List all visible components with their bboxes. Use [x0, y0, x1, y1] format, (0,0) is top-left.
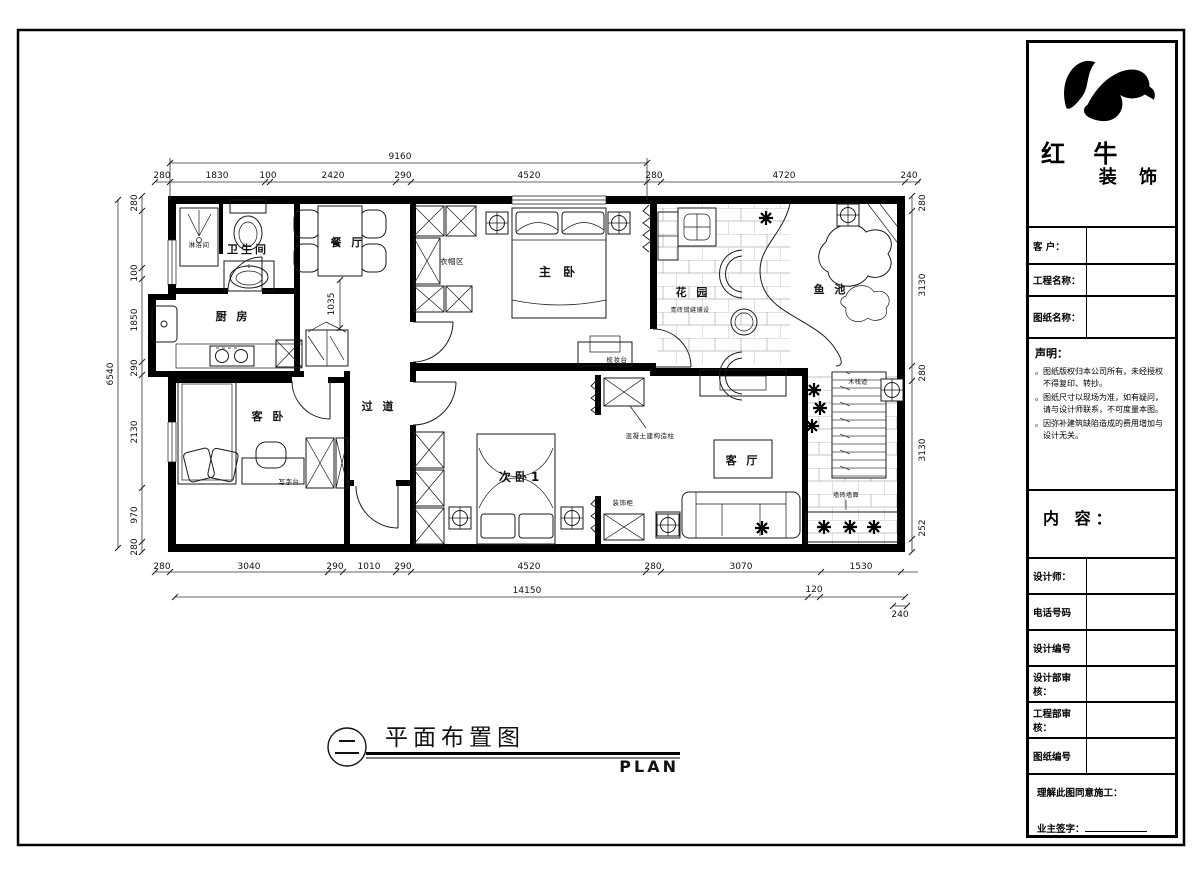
dim-label: 290 — [394, 562, 411, 572]
dim-label: 6540 — [106, 362, 116, 385]
title-block: 红 牛 装 饰 客 户： 工程名称： 图纸名称： 声明： 图纸版权归本公司所有，… — [1026, 40, 1178, 838]
field-design-no: 设计编号 — [1029, 629, 1175, 665]
field-customer: 客 户： — [1029, 226, 1175, 263]
statement-section: 声明： 图纸版权归本公司所有，未经授权不得复印、转抄。 图纸尺寸以现场为准，如有… — [1029, 337, 1175, 489]
company-logo-section: 红 牛 装 饰 — [1029, 43, 1175, 226]
company-subname: 装 饰 — [1029, 167, 1175, 189]
field-design-no-value — [1087, 631, 1175, 665]
dim-label: 280 — [153, 171, 170, 181]
owner-signature-label: 业主签字： — [1037, 824, 1085, 835]
caption-subtitle: PLAN — [619, 757, 679, 776]
field-drawing-name: 图纸名称： — [1029, 295, 1175, 337]
dim-label: 4520 — [518, 171, 541, 181]
statement-heading: 声明： — [1035, 345, 1169, 361]
dim-label: 3130 — [918, 273, 928, 296]
dim-label: 290 — [130, 359, 140, 376]
dim-label: 280 — [644, 562, 661, 572]
field-customer-label: 客 户： — [1029, 228, 1087, 263]
dim-label: 2420 — [322, 171, 345, 181]
statement-item: 因弥补建筑缺陷造成的费用增加与设计无关。 — [1035, 418, 1169, 441]
dim-label: 100 — [130, 264, 140, 281]
dim-label: 1850 — [130, 308, 140, 331]
dim-label: 240 — [900, 171, 917, 181]
dim-label: 280 — [153, 562, 170, 572]
room-label-living-room: 客 厅 — [725, 453, 761, 467]
annotation-garden-paving: 青砖错缝铺设 — [670, 306, 709, 314]
company-name: 红 牛 — [1029, 141, 1175, 167]
field-design-review: 设计部审核： — [1029, 665, 1175, 701]
field-drawing-name-label: 图纸名称： — [1029, 297, 1087, 337]
signature-section: 理解此图同意施工： 业主签字： — [1029, 773, 1175, 835]
content-label: 内 容： — [1043, 509, 1117, 528]
annotation-concrete-column: 混凝土建构造柱 — [626, 431, 675, 440]
detail-index-symbol — [328, 728, 366, 766]
dim-label: 14150 — [513, 586, 542, 596]
field-engineering-review: 工程部审核： — [1029, 701, 1175, 737]
dim-label: 1010 — [358, 562, 381, 572]
dim-label: 290 — [394, 171, 411, 181]
annotation-decor-cabinet: 装饰柜 — [613, 498, 634, 507]
dim-label: 280 — [645, 171, 662, 181]
caption-title: 平面布置图 — [385, 725, 525, 751]
dim-label: 100 — [259, 171, 276, 181]
field-engineering-review-label: 工程部审核： — [1029, 703, 1087, 737]
room-label-garden: 花 园 — [676, 285, 711, 299]
room-label-corridor: 过 道 — [362, 399, 397, 413]
field-drawing-no: 图纸编号 — [1029, 737, 1175, 773]
room-label-bathroom: 卫生间 — [227, 242, 269, 256]
dim-label: 3130 — [918, 438, 928, 461]
annotation-boardwalk: 木栈道 — [848, 378, 868, 386]
field-designer-label: 设计师： — [1029, 559, 1087, 593]
field-engineering-review-value — [1087, 703, 1175, 737]
statement-item: 图纸版权归本公司所有，未经授权不得复印、转抄。 — [1035, 366, 1169, 389]
field-phone-value — [1087, 595, 1175, 629]
dim-label: 2130 — [130, 420, 140, 443]
room-label-guest-bedroom: 客 卧 — [251, 409, 287, 423]
drawing-sheet: 9160 280 1830 100 2420 290 4520 280 4720… — [0, 0, 1200, 875]
dim-label: 1830 — [206, 171, 229, 181]
dim-label: 9160 — [389, 152, 412, 162]
agree-label: 理解此图同意施工： — [1037, 785, 1169, 799]
field-project-name: 工程名称： — [1029, 263, 1175, 295]
caption: 平面布置图 PLAN — [328, 725, 680, 776]
dim-label: 1035 — [327, 293, 337, 316]
field-drawing-no-value — [1087, 739, 1175, 773]
dim-label: 290 — [326, 562, 343, 572]
dim-label: 120 — [805, 585, 822, 595]
field-project-name-label: 工程名称： — [1029, 265, 1087, 295]
dim-label: 240 — [891, 610, 908, 620]
dim-label: 280 — [918, 194, 928, 211]
statement-item: 图纸尺寸以现场为准，如有疑问，请与设计师联系，不可度量本图。 — [1035, 392, 1169, 415]
dim-label: 4720 — [773, 171, 796, 181]
field-project-name-value — [1087, 265, 1175, 295]
field-phone: 电话号码 — [1029, 593, 1175, 629]
room-label-master-bedroom: 主 卧 — [539, 264, 579, 279]
field-phone-label: 电话号码 — [1029, 595, 1087, 629]
field-drawing-name-value — [1087, 297, 1175, 337]
annotation-dressing-table: 梳妆台 — [607, 355, 628, 364]
room-label-dining: 餐 厅 — [330, 235, 366, 249]
annotation-desk: 写字台 — [279, 477, 300, 486]
company-logo — [1039, 49, 1165, 141]
field-customer-value — [1087, 228, 1175, 263]
statement-list: 图纸版权归本公司所有，未经授权不得复印、转抄。 图纸尺寸以现场为准，如有疑问，请… — [1035, 366, 1169, 442]
room-label-bedroom2: 次卧1 — [499, 469, 543, 484]
room-label-cloak-area: 衣帽区 — [440, 256, 464, 266]
dim-label: 280 — [130, 194, 140, 211]
dim-label: 4520 — [518, 562, 541, 572]
dim-label: 3070 — [730, 562, 753, 572]
floor-plan-canvas: 9160 280 1830 100 2420 290 4520 280 4720… — [0, 0, 1200, 875]
content-section: 内 容： — [1029, 489, 1175, 557]
room-label-shower: 淋浴间 — [189, 240, 210, 249]
dim-label: 3040 — [238, 562, 261, 572]
dim-label: 970 — [130, 506, 140, 523]
dim-label: 252 — [918, 519, 928, 536]
field-drawing-no-label: 图纸编号 — [1029, 739, 1087, 773]
dim-label: 280 — [130, 538, 140, 555]
dim-label: 1530 — [850, 562, 873, 572]
field-designer: 设计师： — [1029, 557, 1175, 593]
dim-label: 280 — [918, 364, 928, 381]
owner-signature-line — [1085, 821, 1147, 832]
field-design-review-label: 设计部审核： — [1029, 667, 1087, 701]
sheet-border — [18, 30, 1184, 845]
field-designer-value — [1087, 559, 1175, 593]
field-design-review-value — [1087, 667, 1175, 701]
field-design-no-label: 设计编号 — [1029, 631, 1087, 665]
room-label-kitchen: 厨 房 — [216, 309, 251, 323]
room-label-fish-pond: 鱼 池 — [814, 282, 849, 296]
annotation-wall-tile: 墙砖墙面 — [833, 491, 859, 499]
